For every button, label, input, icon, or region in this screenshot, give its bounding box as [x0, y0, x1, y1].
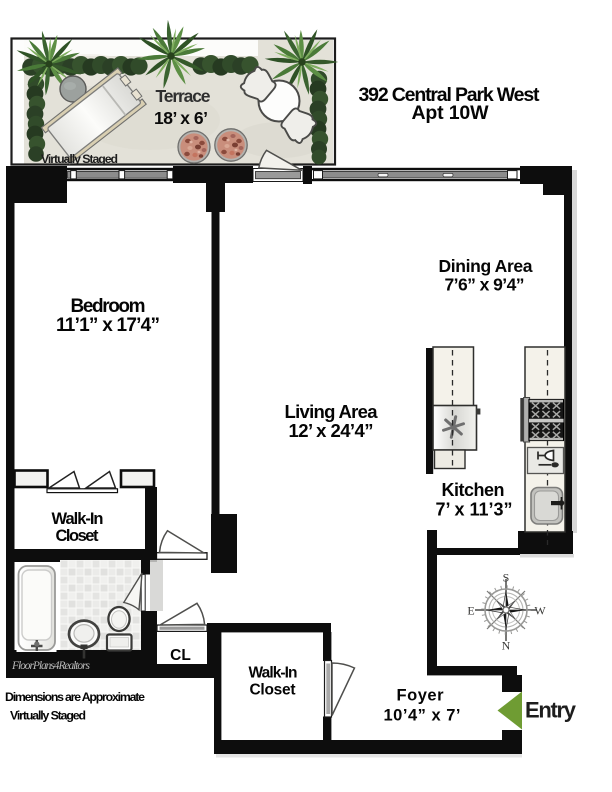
svg-text:Dimensions are Approximate: Dimensions are Approximate: [5, 690, 145, 704]
svg-text:Walk-In: Walk-In: [249, 665, 298, 682]
svg-text:Terrace: Terrace: [156, 86, 211, 106]
svg-text:Walk-In: Walk-In: [52, 510, 104, 528]
svg-text:FloorPlans4Realtors: FloorPlans4Realtors: [11, 660, 91, 672]
svg-text:W: W: [534, 604, 546, 618]
svg-text:Virtually Staged: Virtually Staged: [41, 152, 118, 166]
svg-text:Foyer: Foyer: [397, 687, 445, 705]
svg-text:18’ x 6’: 18’ x 6’: [154, 108, 208, 128]
svg-text:Dining Area: Dining Area: [439, 256, 533, 276]
svg-text:Living Area: Living Area: [285, 401, 379, 422]
svg-text:S: S: [503, 571, 510, 585]
svg-text:7’ x 11’3”: 7’ x 11’3”: [436, 500, 513, 520]
svg-text:Closet: Closet: [250, 682, 296, 699]
svg-text:11’1” x 17’4”: 11’1” x 17’4”: [56, 315, 160, 336]
svg-text:Closet: Closet: [56, 527, 100, 545]
svg-text:10’4” x 7’: 10’4” x 7’: [384, 707, 461, 725]
svg-text:Entry: Entry: [525, 698, 577, 723]
svg-text:7’6” x 9’4”: 7’6” x 9’4”: [445, 275, 525, 295]
svg-text:E: E: [467, 604, 474, 618]
svg-text:Bedroom: Bedroom: [71, 296, 146, 317]
svg-text:CL: CL: [170, 647, 191, 664]
svg-text:12’ x 24’4”: 12’ x 24’4”: [289, 420, 374, 441]
svg-text:Virtually Staged: Virtually Staged: [10, 709, 86, 723]
svg-text:Apt 10W: Apt 10W: [412, 102, 490, 124]
svg-text:N: N: [502, 639, 511, 653]
svg-text:Kitchen: Kitchen: [442, 480, 505, 500]
